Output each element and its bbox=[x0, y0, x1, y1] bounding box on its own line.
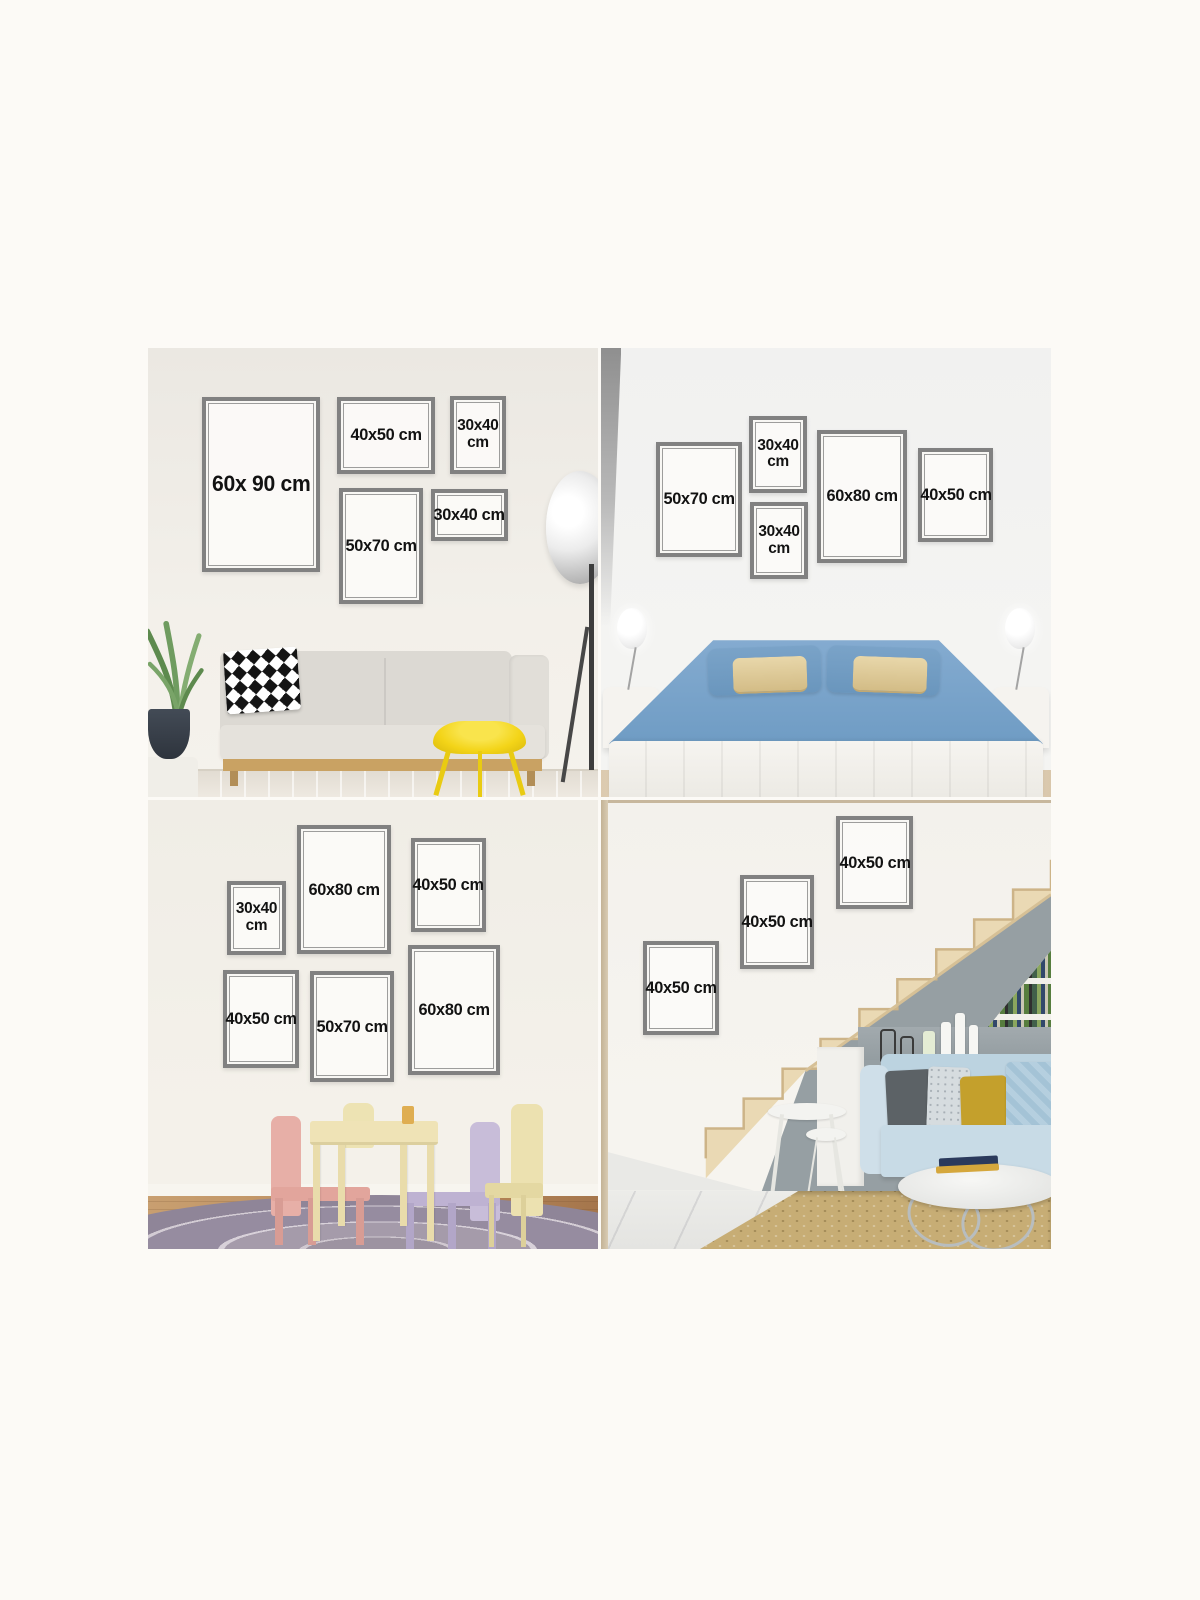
frame-size-label: 40x50 cm bbox=[350, 426, 421, 444]
frame-size-label: 60x 90 cm bbox=[212, 473, 310, 496]
triangle-pattern-pillow bbox=[222, 646, 300, 714]
frame-size-label: 40x50 cm bbox=[645, 979, 716, 997]
frame-40x50-top: 40x50 cm bbox=[411, 838, 486, 933]
stool-leg bbox=[433, 751, 450, 796]
photo-edge-top bbox=[601, 800, 1051, 803]
frame-size-label: 30x40 cm bbox=[232, 901, 281, 934]
frame-60x80-top: 60x80 cm bbox=[297, 825, 391, 954]
stool-leg bbox=[508, 751, 525, 796]
sofa-leg bbox=[230, 771, 239, 786]
chair-backrest bbox=[511, 1104, 543, 1216]
frame-size-label: 50x70 cm bbox=[663, 490, 734, 508]
photo-edge-left bbox=[601, 800, 608, 1249]
table-lamp-right bbox=[1005, 608, 1035, 648]
frame-size-label: 60x80 cm bbox=[418, 1001, 489, 1019]
chair-leg bbox=[521, 1195, 526, 1247]
plant-stand bbox=[148, 757, 198, 797]
kids-table bbox=[310, 1121, 438, 1242]
frame-50x70: 50x70 cm bbox=[339, 488, 423, 605]
side-table-leg bbox=[770, 1114, 784, 1197]
quadrant-kids-room: 30x40 cm 60x80 cm 40x50 cm 40x50 cm 50x7… bbox=[148, 800, 598, 1249]
stool-top bbox=[806, 1128, 847, 1141]
frame-size-label: 30x40 cm bbox=[434, 506, 505, 524]
quadrant-bedroom: 50x70 cm 30x40 cm 30x40 cm 60x80 cm 40x5… bbox=[601, 348, 1051, 797]
cream-pillow-left bbox=[732, 656, 807, 695]
frame-size-label: 40x50 cm bbox=[839, 854, 910, 872]
frame-30x40-top: 30x40 cm bbox=[749, 416, 807, 493]
kids-chair-yellow bbox=[485, 1104, 544, 1248]
frame-40x50-lower: 40x50 cm bbox=[643, 941, 719, 1036]
frame-size-label: 40x50 cm bbox=[413, 876, 484, 894]
table-leg bbox=[400, 1140, 407, 1226]
chair-leg bbox=[275, 1198, 283, 1245]
frame-size-guide-collage: 60x 90 cm 40x50 cm 30x40 cm 50x70 cm 30x… bbox=[0, 0, 1200, 1600]
frame-30x40: 30x40 cm bbox=[450, 396, 506, 474]
quadrant-staircase: 40x50 cm 40x50 cm 40x50 cm bbox=[601, 800, 1051, 1249]
frame-size-label: 30x40 cm bbox=[455, 418, 501, 451]
crayon-cup bbox=[402, 1106, 414, 1124]
frame-60x90: 60x 90 cm bbox=[202, 397, 320, 573]
frame-60x80-bottom: 60x80 cm bbox=[408, 945, 500, 1074]
table-lamp-left bbox=[617, 608, 647, 648]
frame-size-label: 30x40 cm bbox=[754, 438, 802, 471]
bed-upholstered-base bbox=[609, 741, 1043, 797]
yellow-stool bbox=[433, 721, 526, 797]
frame-40x50-upper: 40x50 cm bbox=[836, 816, 913, 909]
frame-size-label: 40x50 cm bbox=[741, 913, 812, 931]
table-top bbox=[310, 1121, 438, 1145]
collage-grid: 60x 90 cm 40x50 cm 30x40 cm 50x70 cm 30x… bbox=[148, 348, 1051, 1249]
frame-40x50: 40x50 cm bbox=[918, 448, 993, 543]
frame-50x70: 50x70 cm bbox=[310, 971, 394, 1082]
table-leg bbox=[313, 1140, 320, 1242]
plant-leaves bbox=[148, 620, 204, 714]
stool-leg bbox=[478, 751, 483, 797]
sofa-leg bbox=[527, 771, 536, 786]
frame-40x50-bottom: 40x50 cm bbox=[223, 970, 299, 1067]
table-leg bbox=[427, 1140, 434, 1242]
floor-lamp-pole bbox=[589, 564, 594, 771]
frame-size-label: 40x50 cm bbox=[920, 486, 991, 504]
chair-leg bbox=[448, 1203, 456, 1249]
frame-30x40-landscape: 30x40 cm bbox=[431, 489, 508, 541]
frame-60x80: 60x80 cm bbox=[817, 430, 908, 563]
stool-tray-top bbox=[433, 721, 526, 755]
frame-30x40-bottom: 30x40 cm bbox=[750, 502, 808, 578]
frame-size-label: 40x50 cm bbox=[226, 1010, 297, 1028]
plant-pot bbox=[148, 709, 190, 758]
frame-30x40: 30x40 cm bbox=[227, 881, 286, 956]
chair-leg bbox=[489, 1195, 494, 1247]
frame-size-label: 50x70 cm bbox=[316, 1018, 387, 1036]
table-leg bbox=[338, 1140, 345, 1226]
cream-pillow-right bbox=[853, 656, 928, 695]
quadrant-living-room: 60x 90 cm 40x50 cm 30x40 cm 50x70 cm 30x… bbox=[148, 348, 598, 797]
frame-size-label: 50x70 cm bbox=[345, 537, 416, 555]
frame-size-label: 60x80 cm bbox=[826, 487, 897, 505]
frame-40x50-middle: 40x50 cm bbox=[740, 875, 815, 970]
frame-40x50: 40x50 cm bbox=[337, 397, 435, 474]
frame-50x70: 50x70 cm bbox=[656, 442, 742, 557]
frame-size-label: 30x40 cm bbox=[755, 524, 803, 557]
frame-size-label: 60x80 cm bbox=[308, 881, 379, 899]
